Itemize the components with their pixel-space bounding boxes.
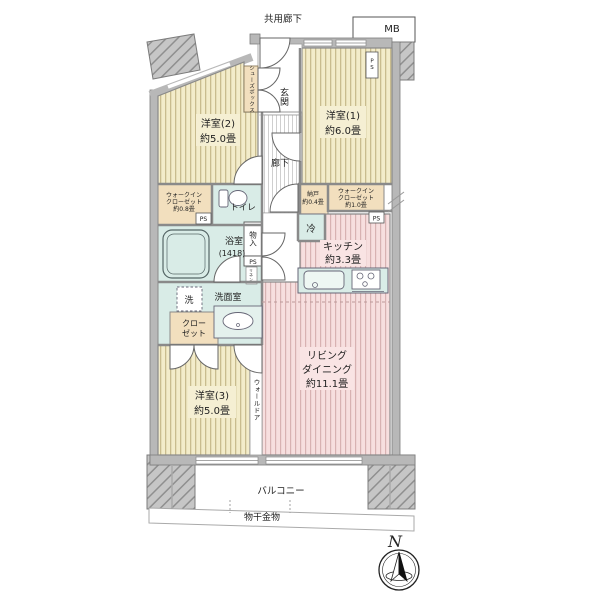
kitchen-sink-icon [304, 271, 344, 289]
closet-label-2: ゼット [182, 328, 206, 338]
toilet-label: トイレ [230, 203, 256, 213]
kitchen-size: 約3.3畳 [325, 253, 361, 266]
entrance-label: 玄関 [278, 86, 289, 107]
closet-label-1: クロー [182, 319, 206, 328]
wall-stub-entrance [250, 34, 260, 44]
western3-size: 約5.0畳 [194, 404, 230, 417]
ps-label-top: PS [369, 59, 375, 72]
wic-right-label-1: ウォークイン [338, 187, 374, 195]
floor-plan-drawing: 共用廊下 MB [0, 0, 600, 600]
toilet-tank-icon [219, 190, 228, 207]
western2-size: 約5.0畳 [200, 132, 236, 145]
nando-name: 納戸 [307, 190, 319, 198]
monoire-label: 物入 [248, 230, 257, 247]
nando-size: 約0.4畳 [302, 198, 324, 206]
hallway-label: 廊下 [271, 157, 289, 169]
wic-right-size: 約1.0畳 [345, 201, 367, 209]
washroom-label: 洗面室 [214, 291, 241, 303]
living-size: 約11.1畳 [306, 377, 348, 390]
shoe-box-label: シューズボックス [248, 65, 255, 113]
wic-right-label-2: クローゼット [338, 194, 374, 202]
north-label: N [387, 532, 403, 551]
western1-size: 約6.0畳 [325, 124, 361, 137]
wic-left-size: 約0.8畳 [173, 205, 195, 213]
ps-label-right: PS [373, 216, 381, 223]
common-corridor-label: 共用廊下 [264, 13, 302, 25]
linen-label: リネン [249, 268, 254, 282]
living-label-1: リビング [307, 349, 347, 362]
wall-left [150, 90, 158, 465]
drying-hardware-label: 物干金物 [244, 511, 280, 523]
balcony-label: バルコニー [257, 486, 304, 497]
wic-left-label-2: クローゼット [166, 198, 202, 206]
washer-label: 洗 [184, 294, 193, 306]
fridge-label: 冷 [306, 223, 316, 235]
floor-plan-page: 共用廊下 MB [0, 0, 600, 600]
kitchen-name: キッチン [323, 241, 363, 253]
western3-name: 洋室(3) [195, 389, 229, 402]
ps-label-center: PS [249, 259, 257, 266]
wall-door-label: ウォールドア [252, 379, 260, 421]
bottom-windows [196, 457, 362, 464]
western2-name: 洋室(2) [201, 117, 235, 130]
sink-basin-icon [223, 313, 253, 330]
bath-name: 浴室 [225, 235, 243, 247]
ps-label-left: PS [200, 216, 208, 223]
wic-left-label-1: ウォークイン [166, 191, 202, 199]
wall-right [392, 42, 400, 465]
bath-size: (1418) [219, 249, 246, 258]
western1-name: 洋室(1) [326, 109, 360, 122]
mb-label: MB [384, 24, 400, 35]
living-label-2: ダイニング [302, 363, 352, 376]
